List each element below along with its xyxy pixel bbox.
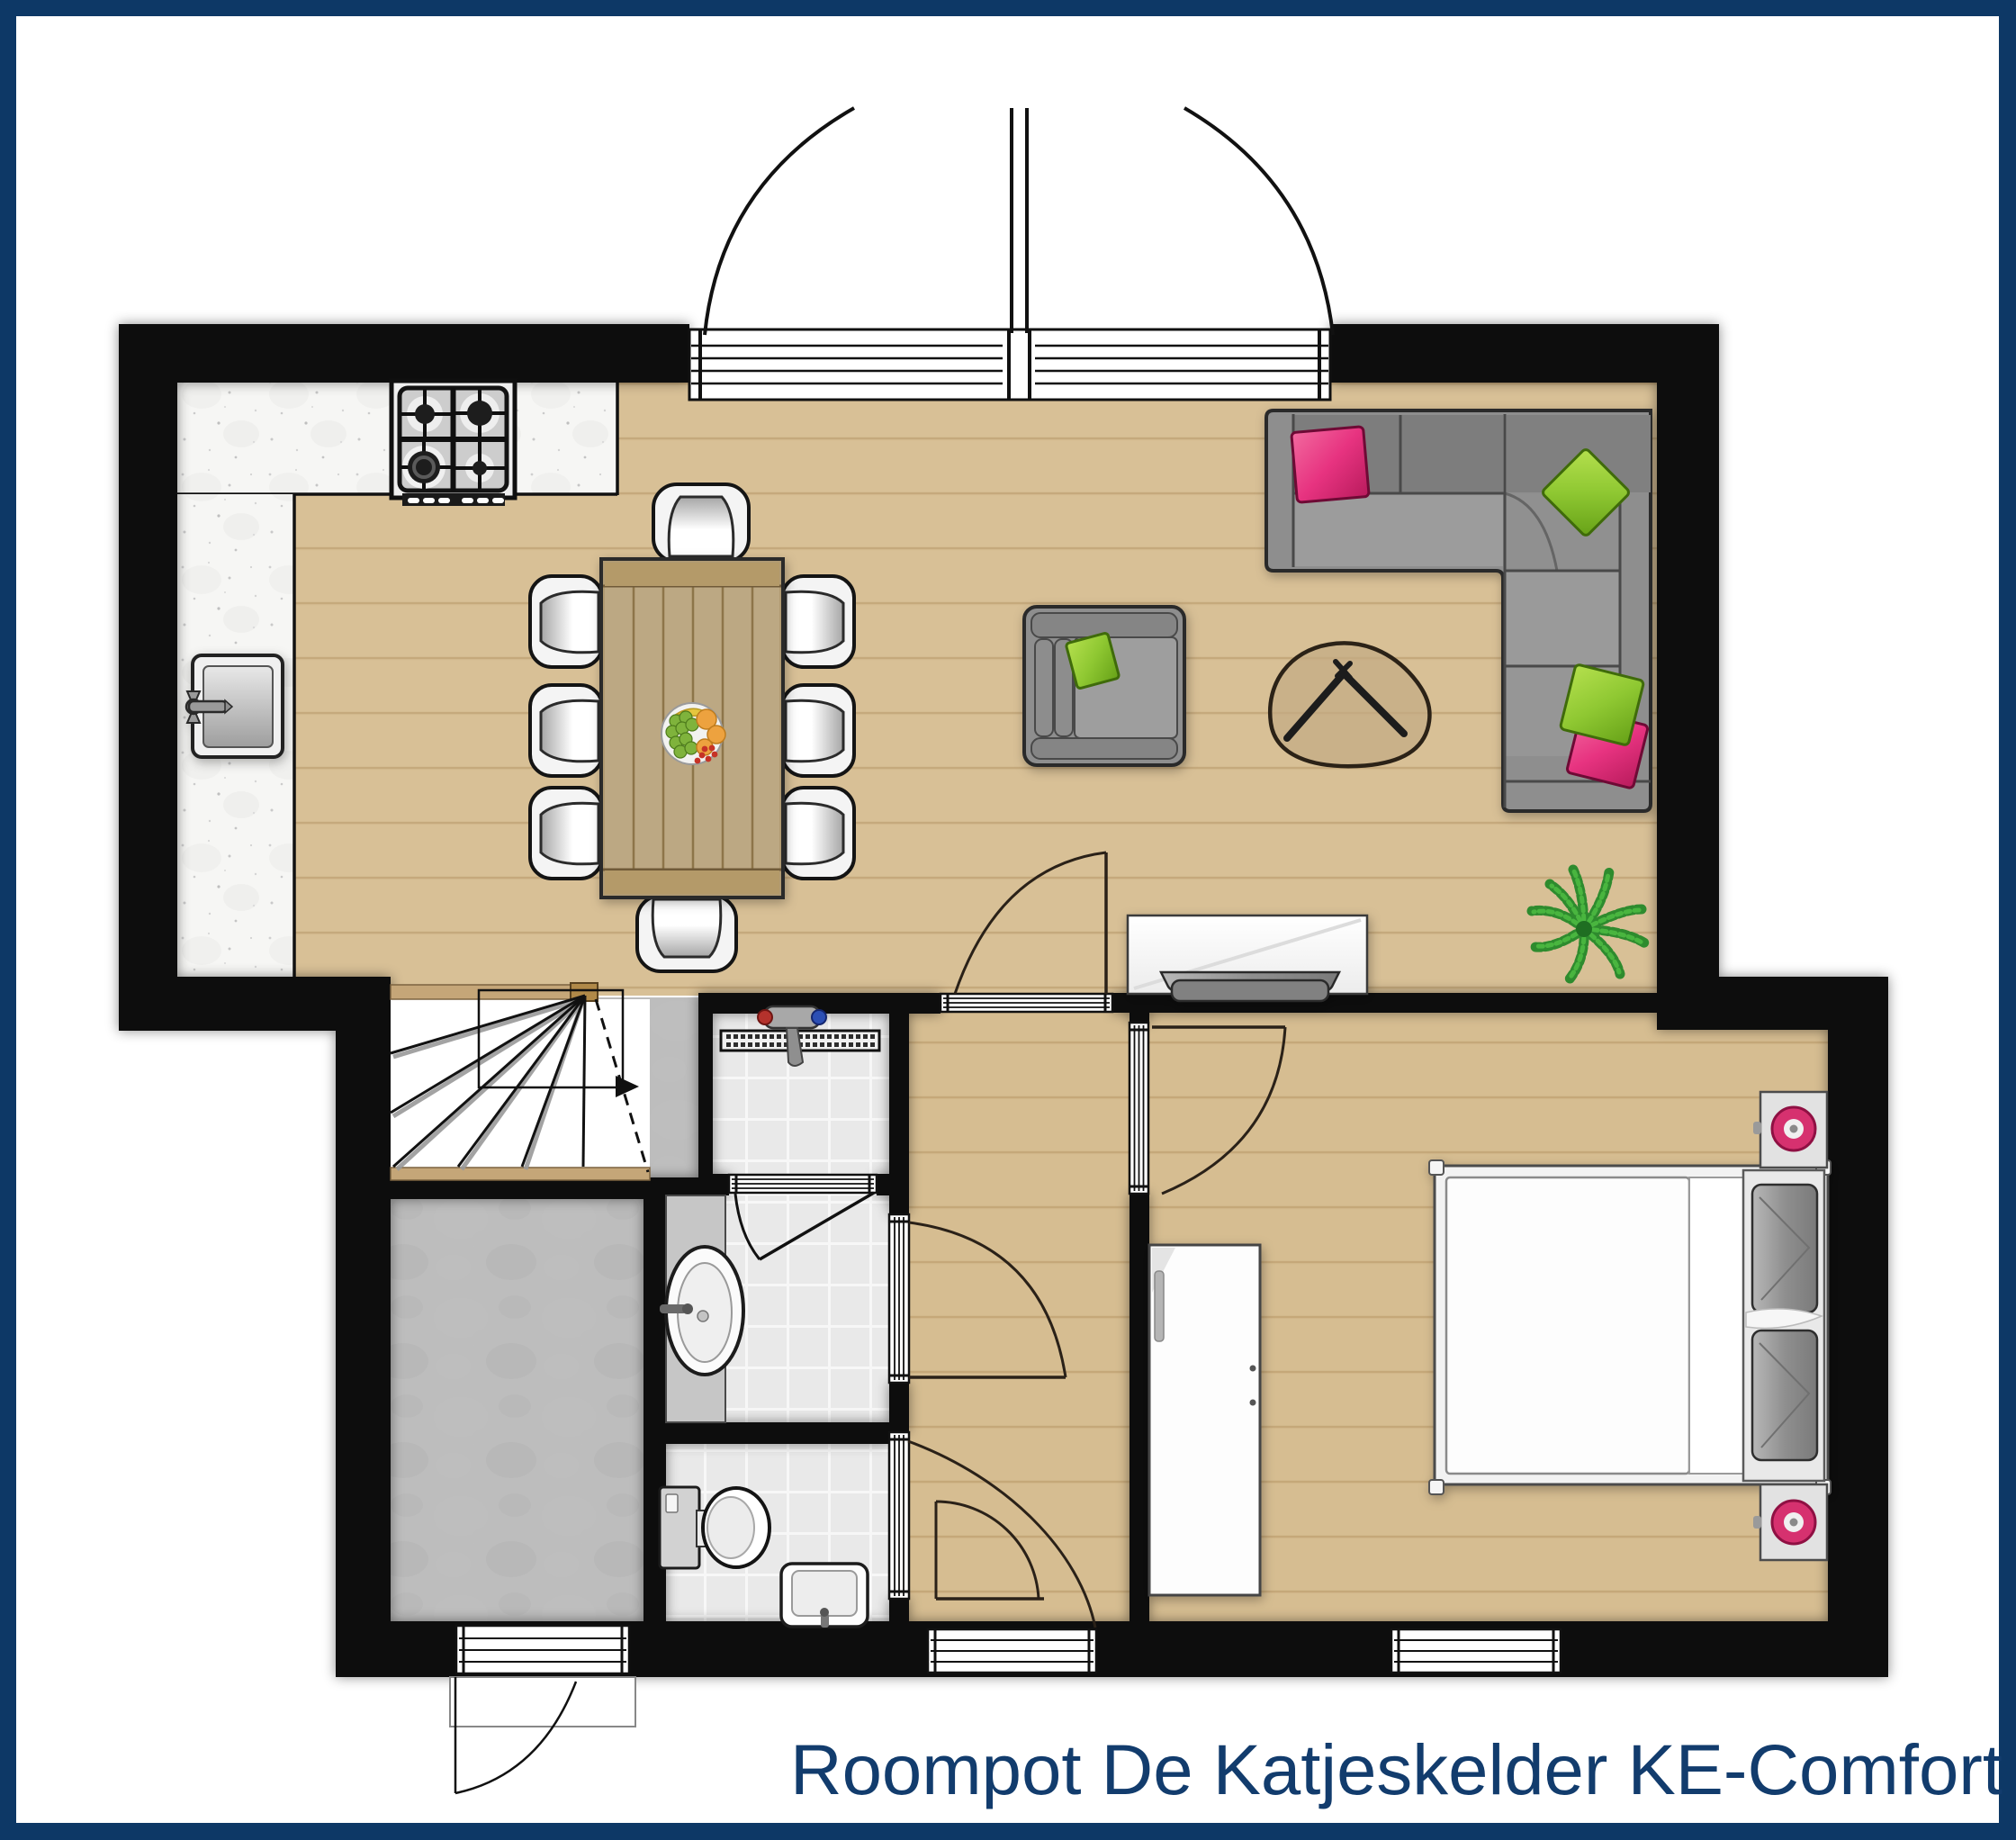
svg-text:Roompot De Katjeskelder KE-Com: Roompot De Katjeskelder KE-Comfort — [790, 1729, 2002, 1809]
